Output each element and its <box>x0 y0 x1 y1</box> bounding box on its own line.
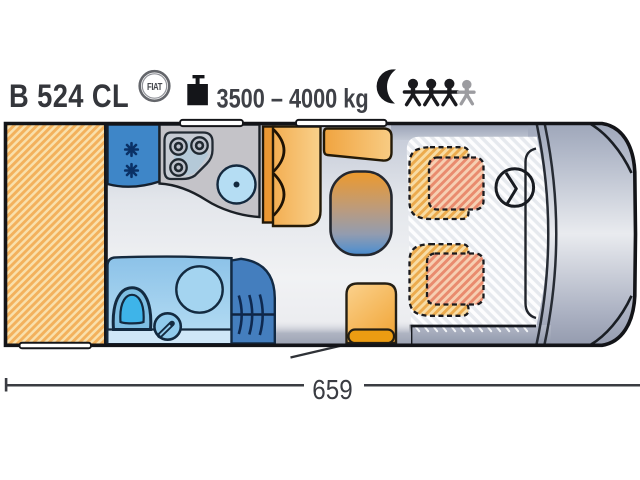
svg-text:659: 659 <box>312 375 352 405</box>
svg-text:B 524 CL: B 524 CL <box>9 79 129 115</box>
svg-text:3500 – 4000 kg: 3500 – 4000 kg <box>217 84 369 114</box>
svg-text:FIAT: FIAT <box>147 81 163 92</box>
